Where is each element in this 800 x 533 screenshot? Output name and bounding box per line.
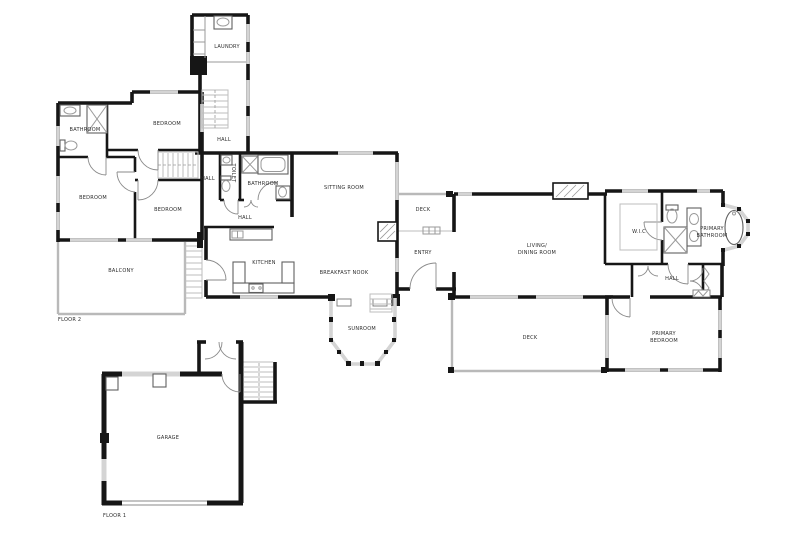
bathtub-icon [725, 211, 743, 245]
staircase-garage [243, 362, 277, 402]
room-label-living-line2: DINING ROOM [518, 250, 556, 256]
room-label-kitchen: KITCHEN [252, 260, 275, 266]
room-label-wic: W.I.C [632, 229, 646, 235]
floor1-label: FLOOR 1 [103, 513, 126, 519]
room-label-bathroom-mid: BATHROOM [248, 181, 279, 187]
room-labels: LAUNDRY HALL BATHROOM BEDROOM BEDROOM BE… [58, 44, 727, 519]
room-label-balcony: BALCONY [108, 268, 134, 274]
room-label-bedroom-top: BEDROOM [153, 121, 181, 127]
room-label-toilet: TOILET [230, 163, 236, 184]
room-label-primary-bed-line1: PRIMARY [652, 331, 676, 337]
room-label-primary-bed-line2: BEDROOM [650, 338, 678, 344]
room-label-living-line1: LIVING/ [527, 243, 547, 249]
staircase-balcony [185, 232, 203, 298]
doors [88, 150, 710, 392]
room-label-laundry: LAUNDRY [214, 44, 240, 50]
toilet-icon [221, 176, 231, 180]
room-label-sunroom: SUNROOM [348, 326, 376, 332]
exterior-walls [58, 15, 723, 372]
interior-walls [58, 103, 723, 297]
kitchen-counter [282, 262, 294, 283]
laundry-fixtures [193, 16, 246, 62]
toilet-icon [60, 140, 65, 151]
kitchen-counter [233, 262, 245, 283]
windows [58, 24, 720, 370]
room-label-primary-bath-line1: PRIMARY [700, 226, 724, 232]
room-label-sitting-room: SITTING ROOM [324, 185, 364, 191]
room-label-deck-upper: DECK [416, 207, 431, 213]
bathroom-mid-fixtures [242, 155, 290, 199]
fireplace-living-room [553, 183, 588, 199]
room-label-hall-lower: HALL [238, 215, 252, 221]
staircase-floor2-mid [158, 152, 198, 178]
garage-walls [100, 342, 243, 505]
wic-closet [620, 204, 657, 250]
fireplace-sitting-room [378, 222, 397, 241]
room-label-deck-lower: DECK [523, 335, 538, 341]
room-label-bathroom-upper: BATHROOM [70, 127, 101, 133]
room-label-bedroom-mid: BEDROOM [154, 207, 182, 213]
room-label-hall-mid: HALL [201, 176, 215, 182]
room-label-hall-stair: HALL [217, 137, 231, 143]
room-label-garage: GARAGE [157, 435, 179, 441]
room-label-bedroom-left: BEDROOM [79, 195, 107, 201]
room-label-entry: ENTRY [414, 250, 432, 256]
floor-plan-canvas: LAUNDRY HALL BATHROOM BEDROOM BEDROOM BE… [0, 0, 800, 533]
deck-lower-railing [448, 293, 607, 373]
balcony-railing [58, 242, 185, 314]
room-label-breakfast-nook: BREAKFAST NOOK [320, 270, 369, 276]
room-label-hall-right: HALL [665, 276, 679, 282]
room-label-primary-bath-line2: BATHROOM [697, 233, 728, 239]
floor-plan-svg: LAUNDRY HALL BATHROOM BEDROOM BEDROOM BE… [0, 0, 800, 533]
staircase-upper [202, 90, 228, 128]
floor2-label: FLOOR 2 [58, 317, 81, 323]
